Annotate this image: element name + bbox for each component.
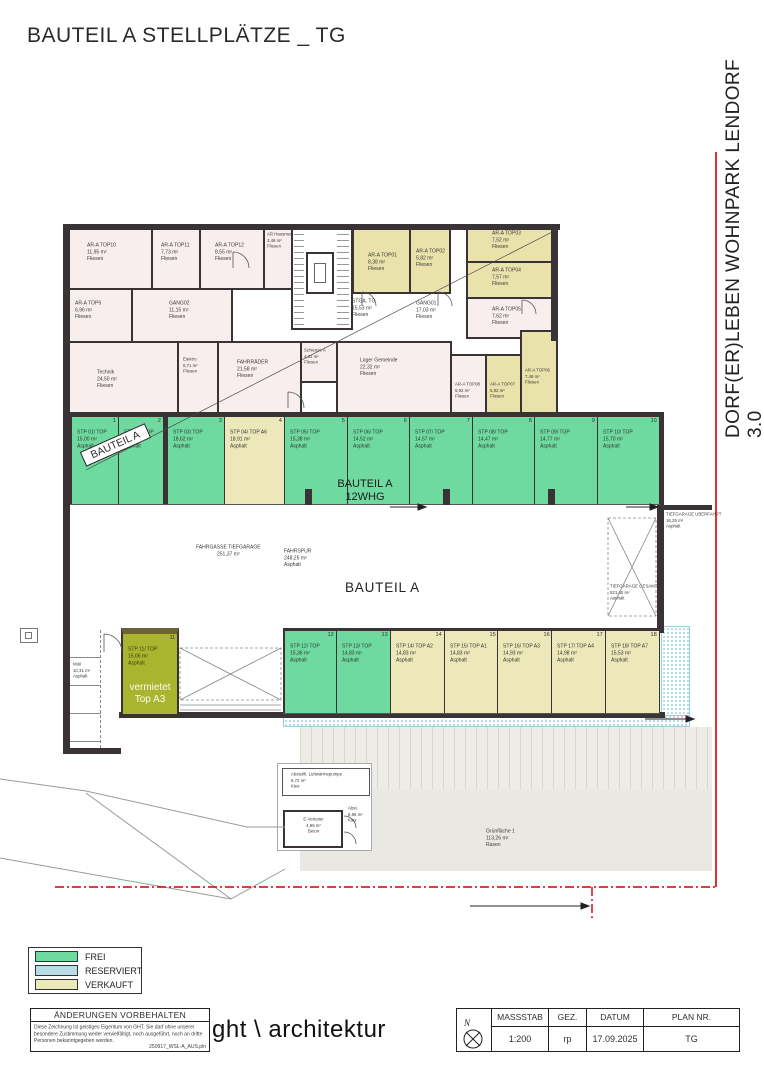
spot-number: 10 <box>651 418 657 424</box>
parking-spot: 8 STP 08/ TOP14,47 m²Asphalt <box>473 417 536 504</box>
legend-swatch <box>35 951 78 962</box>
field-value: rp <box>549 1027 586 1051</box>
project-title-vertical: DORF(ER)LEBEN WOHNPARK LENDORF 3.0 <box>723 26 764 438</box>
parking-spot: 12 STP 12/ TOP15,36 m²Asphalt <box>283 631 337 713</box>
label-gang01: GANG0117,03 m²Fliesen <box>416 300 436 321</box>
room-ar-hausmeister: AR Hausmeister3,46 m²Fliesen <box>263 224 293 290</box>
parking-spot: 4 STP 04/ TOP A618,91 m²Asphalt <box>225 417 285 504</box>
changes-header: ÄNDERUNGEN VORBEHALTEN <box>31 1009 209 1022</box>
room-ar-a-top04: AR-A TOP047,57 m²Fliesen <box>466 261 556 299</box>
plan-annotations: N <box>0 0 764 1080</box>
storage-cells <box>70 630 101 748</box>
legend-row: FREI <box>35 951 135 962</box>
parking-spot-11: 11 STP 11/ TOP15,06 m²Asphalt vermietet … <box>121 628 179 716</box>
label-stga-tg: STGA. TG15,53 m²Fliesen <box>352 298 375 319</box>
heat-pump-label: Abstellfl. Luftwärmepumpe6,72 m²Kies <box>291 772 342 790</box>
heat-pump-box: Abstellfl. Luftwärmepumpe6,72 m²Kies <box>282 768 370 796</box>
field-value: 1:200 <box>492 1027 548 1051</box>
spot-label: STP 10/ TOP15,70 m²Asphalt <box>603 429 633 450</box>
spot-label: STP 11/ TOP15,06 m²Asphalt <box>128 646 157 667</box>
fahrgasse-label: FAHRGASSE TIEFGARAGE251,37 m² <box>196 544 261 558</box>
room-ar-a-top07: AR-A TOP075,82 m²Fliesen <box>485 354 522 417</box>
room-ar-a-top10: AR-A TOP1011,95 m²Fliesen <box>63 224 153 290</box>
pillar <box>305 489 312 505</box>
spot-number: 7 <box>466 418 469 424</box>
ueberfahrt-label: TIEFGARAGE ÜBERFAHRT16,25 m²Asphalt <box>666 512 721 530</box>
spot-number: 17 <box>597 632 603 638</box>
spot-number: 14 <box>435 632 441 638</box>
firm-logo-text: ght \ architektur <box>212 1006 458 1054</box>
titleblock-field: DATUM 17.09.2025 <box>586 1009 643 1051</box>
wall-segment <box>660 505 712 510</box>
spot-number: 6 <box>404 418 407 424</box>
legend-label: RESERVIERT <box>85 966 142 976</box>
spot-number: 5 <box>341 418 344 424</box>
field-label: GEZ. <box>549 1009 586 1027</box>
electrical-box-symbol <box>20 628 38 643</box>
stair-treads-right <box>337 228 349 326</box>
ramp-cross <box>180 648 281 710</box>
spot-label: STP 14/ TOP A214,83 m²Asphalt <box>396 643 433 664</box>
elevator <box>306 252 334 294</box>
legend-row: VERKAUFT <box>35 979 135 990</box>
legend-swatch <box>35 965 78 976</box>
spot-label: STP 13/ TOP14,83 m²Asphalt <box>342 643 372 664</box>
parking-spot: 17 STP 17/ TOP A414,98 m²Asphalt <box>552 631 606 713</box>
parking-spot: 9 STP 09/ TOP14,77 m²Asphalt <box>535 417 598 504</box>
room-ar-a-top12: AR-A TOP128,55 m²Fliesen <box>199 224 265 290</box>
drainage-strip-vertical <box>661 626 690 716</box>
parking-spot: 16 STP 16/ TOP A314,93 m²Asphalt <box>498 631 552 713</box>
plan-sheet: BAUTEIL A STELLPLÄTZE _ TG DORF(ER)LEBEN… <box>0 0 764 1080</box>
room-technik: Technik24,50 m²Fliesen <box>63 341 179 417</box>
bauteil-12whg-label: BAUTEIL A 12WHG <box>317 478 413 503</box>
legend-label: FREI <box>85 952 106 962</box>
spot-label: STP 06/ TOP14,52 m²Asphalt <box>353 429 383 450</box>
room-ar-a-top11: AR-A TOP117,73 m²Fliesen <box>151 224 201 290</box>
field-label: DATUM <box>587 1009 643 1027</box>
titleblock-field: GEZ. rp <box>548 1009 586 1051</box>
field-label: MASSSTAB <box>492 1009 548 1027</box>
spot-label: STP 18/ TOP A715,53 m²Asphalt <box>611 643 648 664</box>
room-ar-a-top01: AR-A TOP018,38 m²Fliesen <box>352 224 411 294</box>
field-value: TG <box>644 1027 739 1051</box>
parking-spot: 18 STP 18/ TOP A715,53 m²Asphalt <box>606 631 660 713</box>
spot-label: STP 15/ TOP A114,83 m²Asphalt <box>450 643 487 664</box>
spot-number: 3 <box>219 418 222 424</box>
muell-label: Müll10,31 m²Asphalt <box>73 662 90 680</box>
fahrspur-label: FAHRSPUR248,25 m²Asphalt <box>284 548 311 569</box>
spot-number: 8 <box>529 418 532 424</box>
field-label: PLAN NR. <box>644 1009 739 1027</box>
parking-spot: 14 STP 14/ TOP A214,83 m²Asphalt <box>391 631 445 713</box>
spot-label: STP 03/ TOP18,62 m²Asphalt <box>173 429 203 450</box>
spot-label: STP 05/ TOP15,38 m²Asphalt <box>290 429 320 450</box>
titleblock-field: MASSSTAB 1:200 <box>491 1009 548 1051</box>
room-gang02: GANG0211,15 m²Fliesen <box>131 288 233 343</box>
spot-number: 11 <box>169 635 175 641</box>
bauteil-a-label: BAUTEIL A <box>345 580 420 595</box>
wall-segment <box>63 224 70 754</box>
legend-label: VERKAUFT <box>85 980 133 990</box>
spot-label: STP 08/ TOP14,47 m²Asphalt <box>478 429 508 450</box>
room-lager-gemeinde: Lager Gemeinde22,32 m²Fliesen <box>336 341 452 417</box>
parking-spot: 15 STP 15/ TOP A114,83 m²Asphalt <box>445 631 499 713</box>
legend-swatch <box>35 979 78 990</box>
spot-number: 2 <box>158 418 161 424</box>
spot-number: 4 <box>279 418 282 424</box>
gruenflaeche-label: Grünfläche 1113,26 m²Rasen <box>486 828 515 849</box>
titleblock-table: MASSSTAB 1:200 GEZ. rp DATUM 17.09.2025 … <box>456 1008 740 1052</box>
elevator-car <box>314 263 326 283</box>
room-schleuse-a: Schleuse A4,32 m²Fliesen <box>300 341 338 383</box>
parking-spot: 13 STP 13/ TOP14,83 m²Asphalt <box>337 631 391 713</box>
legend-row: RESERVIERT <box>35 965 135 976</box>
gesamt-label: TIEFGARAGE GESAMT521,60 m²Asphalt <box>610 584 658 602</box>
wall-segment <box>551 224 558 341</box>
spot-label: STP 12/ TOP15,36 m²Asphalt <box>290 643 320 664</box>
room-ar-a-top9: AR-A TOP96,96 m²Fliesen <box>63 288 133 343</box>
roof-outline <box>0 779 285 899</box>
e-verteiler-label: E-Verteiler4,96 m²Beton <box>285 817 342 835</box>
wall-segment <box>63 748 121 754</box>
spot-number: 12 <box>328 632 334 638</box>
field-value: 17.09.2025 <box>587 1027 643 1051</box>
e-verteiler-box: E-Verteiler4,96 m²Beton <box>283 810 343 848</box>
parking-spot: 10 STP 10/ TOP15,70 m²Asphalt <box>598 417 661 504</box>
spot-label: STP 17/ TOP A414,98 m²Asphalt <box>557 643 594 664</box>
spot-number: 1 <box>113 418 116 424</box>
spot-number: 16 <box>543 632 549 638</box>
pillar <box>548 489 555 505</box>
parking-spot: 3 STP 03/ TOP18,62 m²Asphalt <box>168 417 225 504</box>
abst-label: Abst.6,86 m²Kies <box>348 806 363 824</box>
spot-number: 13 <box>382 632 388 638</box>
spot-number: 9 <box>591 418 594 424</box>
spot-label: STP 07/ TOP14,57 m²Asphalt <box>415 429 445 450</box>
legend: FREI RESERVIERT VERKAUFT <box>28 947 142 994</box>
spot-label: STP 16/ TOP A314,93 m²Asphalt <box>503 643 540 664</box>
vermietet-note: vermietet Top A3 <box>123 682 177 706</box>
spot-label: STP 09/ TOP14,77 m²Asphalt <box>540 429 570 450</box>
room-ar-a-top06: AR-A TOP067,48 m²Fliesen <box>520 330 558 417</box>
stair-treads-left <box>294 228 304 326</box>
titleblock-field: PLAN NR. TG <box>643 1009 739 1051</box>
disclaimer-text: Diese Zeichnung ist geistiges Eigentum v… <box>34 1024 218 1045</box>
room-elektro: Elektro6,71 m²Fliesen <box>177 341 219 417</box>
wall-segment <box>63 224 560 230</box>
north-compass-cell <box>457 1009 491 1051</box>
file-name: 250917_WSL-A_AUS.pln <box>149 1044 206 1051</box>
wall-segment <box>657 505 664 633</box>
spot-number: 18 <box>651 632 657 638</box>
stairwell <box>291 224 353 330</box>
room-fahrraeder: FAHRRÄDER21,58 m²Fliesen <box>217 341 302 417</box>
room-ar-a-top02: AR-A TOP025,82 m²Fliesen <box>409 224 451 294</box>
parking-row-2: 12 STP 12/ TOP15,36 m²Asphalt 13 STP 13/… <box>283 628 660 714</box>
spot-number: 15 <box>489 632 495 638</box>
spot-label: STP 04/ TOP A618,91 m²Asphalt <box>230 429 267 450</box>
room-ar-a-top08: AR-A TOP085,92 m²Fliesen <box>450 354 487 417</box>
page-title: BAUTEIL A STELLPLÄTZE _ TG <box>27 24 346 48</box>
titleblock-changes: ÄNDERUNGEN VORBEHALTEN Diese Zeichnung i… <box>30 1008 210 1052</box>
parking-spot: 7 STP 07/ TOP14,57 m²Asphalt <box>410 417 473 504</box>
pillar <box>443 489 450 505</box>
